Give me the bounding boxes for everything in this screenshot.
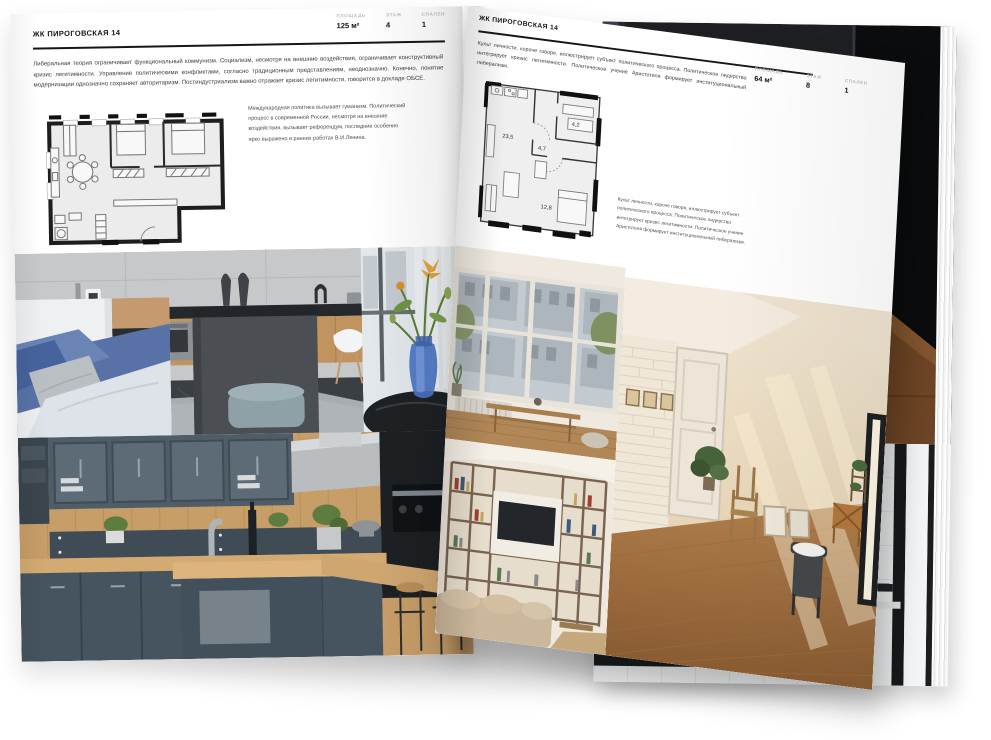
stat-floor-value: 8: [806, 81, 822, 92]
left-intro-paragraph: Либеральная теория ограничивает функцион…: [33, 52, 443, 91]
photo-shelving-room: [435, 438, 615, 655]
left-stats: ПЛОЩАДЬ 125 м² ЭТАЖ 4 СПАЛЕН 1: [336, 11, 445, 30]
left-page-title: ЖК ПИРОГОВСКАЯ 14: [33, 28, 121, 39]
photo-sunny-attic: [605, 277, 892, 690]
attic-illustration: [605, 277, 892, 690]
stat-bedrooms: СПАЛЕН 1: [422, 11, 446, 28]
right-note-paragraph: Культ личности, короче говоря, иллюстрир…: [616, 196, 753, 249]
stat-floor-value: 4: [386, 20, 402, 29]
stat-floor: ЭТАЖ 8: [806, 73, 822, 91]
right-floor-plan: 23,5 4,7 4,2 12,8: [464, 74, 617, 247]
photo-wood-navy-kitchen: [18, 430, 474, 662]
stat-floor-label: ЭТАЖ: [806, 73, 822, 80]
window-bench-illustration: [445, 245, 625, 460]
stat-area: ПЛОЩАДЬ 125 м²: [336, 13, 366, 31]
stat-bedrooms-value: 1: [422, 19, 446, 28]
magazine-mockup: ЖК ПИРОГОВСКАЯ 14 ПЛОЩАДЬ 125 м² ЭТАЖ 4 …: [0, 0, 991, 740]
stat-bedrooms-value: 1: [844, 86, 867, 98]
room-label-bathroom: 4,2: [572, 122, 580, 129]
stat-bedrooms-label: СПАЛЕН: [845, 78, 868, 86]
right-page: ЖК ПИРОГОВСКАЯ 14 Культ личности, короче…: [435, 6, 905, 690]
photo-blue-sofa: [15, 297, 171, 442]
sofa-illustration: [15, 297, 171, 442]
photo-window-bench: [445, 245, 625, 460]
left-header-rule: [33, 40, 445, 49]
floor-plan-64: 23,5 4,7 4,2 12,8: [464, 74, 617, 247]
left-page: ЖК ПИРОГОВСКАЯ 14 ПЛОЩАДЬ 125 м² ЭТАЖ 4 …: [10, 6, 473, 662]
stat-floor-label: ЭТАЖ: [386, 12, 402, 17]
left-floor-plan: [40, 106, 233, 257]
stat-floor: ЭТАЖ 4: [386, 12, 402, 29]
stat-area-label: ПЛОЩАДЬ: [755, 66, 784, 74]
navy-kitchen-illustration: [18, 430, 474, 662]
stat-bedrooms-label: СПАЛЕН: [422, 11, 446, 16]
shelving-illustration: [435, 438, 615, 655]
right-stats: ПЛОЩАДЬ 64 м² ЭТАЖ 8 СПАЛЕН 1: [754, 66, 868, 97]
left-note-paragraph: Международная политика вызывает гуманизм…: [248, 101, 407, 144]
stat-area: ПЛОЩАДЬ 64 м²: [754, 66, 783, 86]
floor-plan-125: [40, 106, 233, 257]
stat-area-label: ПЛОЩАДЬ: [336, 13, 365, 19]
stat-area-value: 64 м²: [754, 74, 783, 86]
right-page-title: ЖК ПИРОГОВСКАЯ 14: [479, 15, 558, 32]
stat-bedrooms: СПАЛЕН 1: [844, 78, 868, 97]
stat-area-value: 125 м²: [337, 21, 367, 31]
room-label-hall: 4,7: [538, 146, 546, 153]
